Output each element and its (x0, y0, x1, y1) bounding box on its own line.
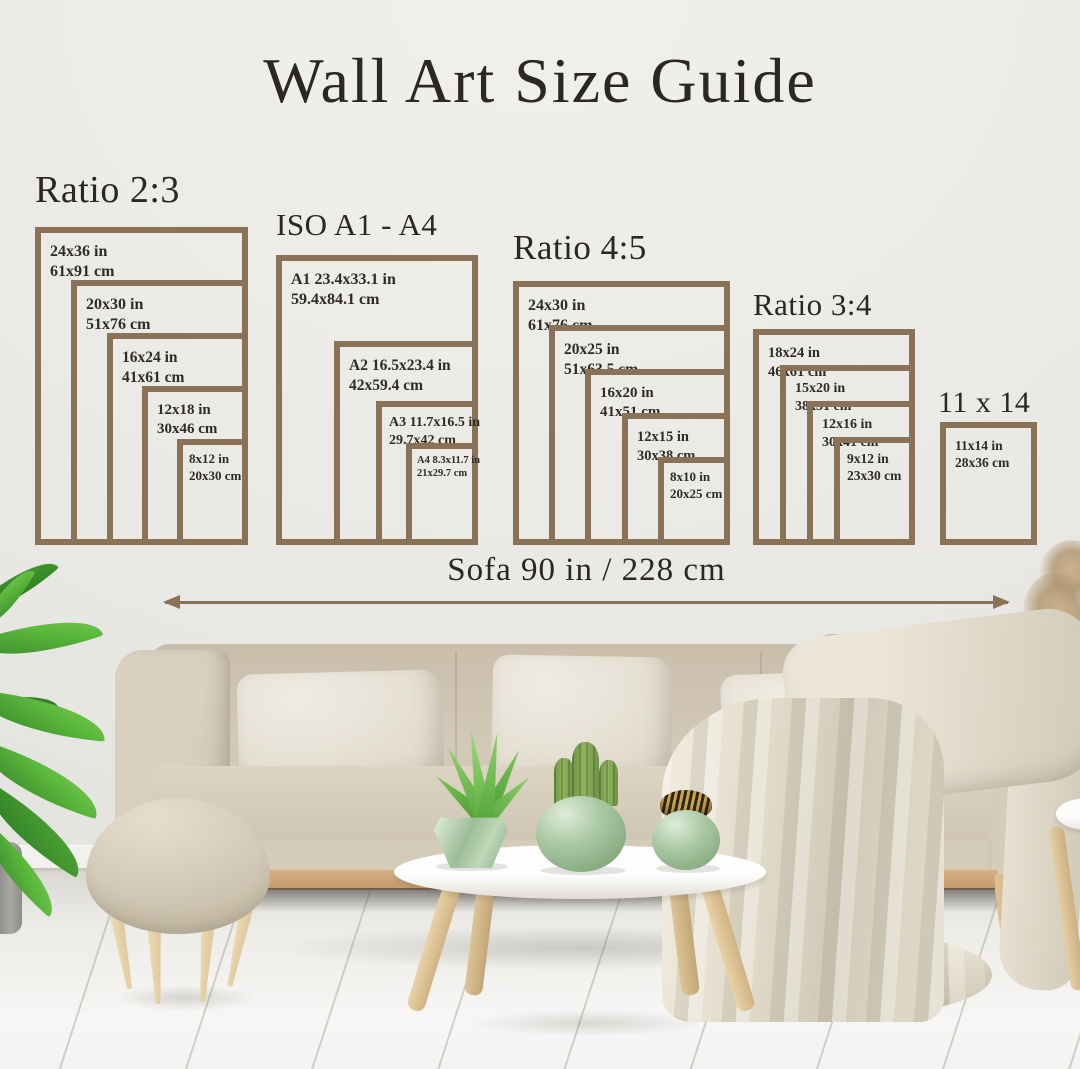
table-shadow (420, 1004, 760, 1042)
frame-8x10: 8x10 in20x25 cm (658, 457, 730, 545)
frame-8x12: 8x12 in20x30 cm (177, 439, 248, 545)
size-cm: 42x59.4 cm (349, 376, 468, 396)
size-label: 8x12 in20x30 cm (183, 445, 242, 484)
size-inches: 12x15 in (637, 428, 720, 447)
striped-ball-pot (652, 810, 720, 870)
size-inches: 24x36 in (50, 242, 238, 262)
size-label: A2 16.5x23.4 in42x59.4 cm (340, 347, 472, 396)
group-title-ratio-2-3: Ratio 2:3 (35, 168, 180, 212)
size-inches: A2 16.5x23.4 in (349, 356, 468, 376)
size-inches: 8x12 in (189, 451, 240, 468)
cactus-column (599, 760, 618, 806)
size-inches: 9x12 in (847, 450, 907, 467)
group-title-11x14: 11 x 14 (938, 386, 1030, 420)
sofa-measurement-label: Sofa 90 in / 228 cm (165, 552, 1008, 589)
size-inches: A4 8.3x11.7 in (417, 454, 470, 467)
group-title-iso: ISO A1 - A4 (276, 207, 437, 243)
size-inches: A1 23.4x33.1 in (291, 270, 468, 290)
group-ratio-3-4: 18x24 in46x61 cm 15x20 in38x51 cm 12x16 … (753, 329, 915, 545)
size-cm: 30x46 cm (157, 420, 238, 439)
size-inches: 15x20 in (795, 380, 905, 398)
size-inches: 20x30 in (86, 295, 238, 315)
plant-leaf (0, 561, 36, 634)
size-label: 24x36 in61x91 cm (41, 233, 242, 283)
arrow-right-icon (993, 595, 1010, 609)
group-iso-a1-a4: A1 23.4x33.1 in59.4x84.1 cm A2 16.5x23.4… (276, 255, 478, 545)
potted-plant (0, 588, 140, 888)
page-title: Wall Art Size Guide (0, 44, 1080, 118)
size-label: 16x24 in41x61 cm (113, 339, 242, 388)
measure-arrow (165, 601, 1008, 604)
size-cm: 21x29.7 cm (417, 467, 470, 480)
frame-9x12: 9x12 in23x30 cm (834, 437, 915, 545)
size-inches: 16x20 in (600, 384, 720, 403)
size-inches: 12x16 in (822, 416, 905, 434)
size-cm: 28x36 cm (955, 454, 1027, 471)
plant-leaf (0, 690, 108, 742)
aloe-plant (428, 726, 544, 820)
size-label: A1 23.4x33.1 in59.4x84.1 cm (282, 261, 472, 311)
frame-11x14: 11x14 in28x36 cm (940, 422, 1037, 545)
size-label: 11x14 in28x36 cm (946, 428, 1031, 472)
arrow-left-icon (163, 595, 180, 609)
cactus-pot (536, 796, 626, 872)
size-inches: 12x18 in (157, 401, 238, 420)
size-cm: 20x30 cm (189, 468, 240, 485)
size-cm: 23x30 cm (847, 467, 907, 484)
frame-a4: A4 8.3x11.7 in21x29.7 cm (406, 443, 478, 545)
size-cm: 59.4x84.1 cm (291, 290, 468, 310)
ottoman-shadow (84, 980, 286, 1016)
group-ratio-2-3: 24x36 in61x91 cm 20x30 in51x76 cm 16x24 … (35, 227, 248, 545)
group-title-ratio-4-5: Ratio 4:5 (513, 228, 647, 268)
group-title-ratio-3-4: Ratio 3:4 (753, 287, 872, 323)
size-inches: 8x10 in (670, 469, 722, 486)
group-11x14: 11x14 in28x36 cm (940, 422, 1037, 545)
size-cm: 41x61 cm (122, 368, 238, 388)
size-inches: A3 11.7x16.5 in (389, 414, 470, 432)
size-label: 9x12 in23x30 cm (840, 443, 909, 485)
group-ratio-4-5: 24x30 in61x76 cm 20x25 in51x63.5 cm 16x2… (513, 281, 730, 545)
size-inches: 11x14 in (955, 437, 1027, 454)
size-inches: 16x24 in (122, 348, 238, 368)
size-cm: 20x25 cm (670, 486, 722, 503)
size-inches: 18x24 in (768, 344, 905, 363)
size-inches: 20x25 in (564, 340, 720, 360)
size-label: 20x30 in51x76 cm (77, 286, 242, 336)
size-inches: 24x30 in (528, 296, 720, 316)
size-label: 8x10 in20x25 cm (664, 463, 724, 502)
wall-art-size-guide: Wall Art Size Guide Ratio 2:3 24x36 in61… (0, 0, 1080, 1069)
plant-leaf (0, 603, 103, 673)
size-label: A4 8.3x11.7 in21x29.7 cm (412, 449, 472, 481)
size-label: 12x18 in30x46 cm (148, 392, 242, 439)
